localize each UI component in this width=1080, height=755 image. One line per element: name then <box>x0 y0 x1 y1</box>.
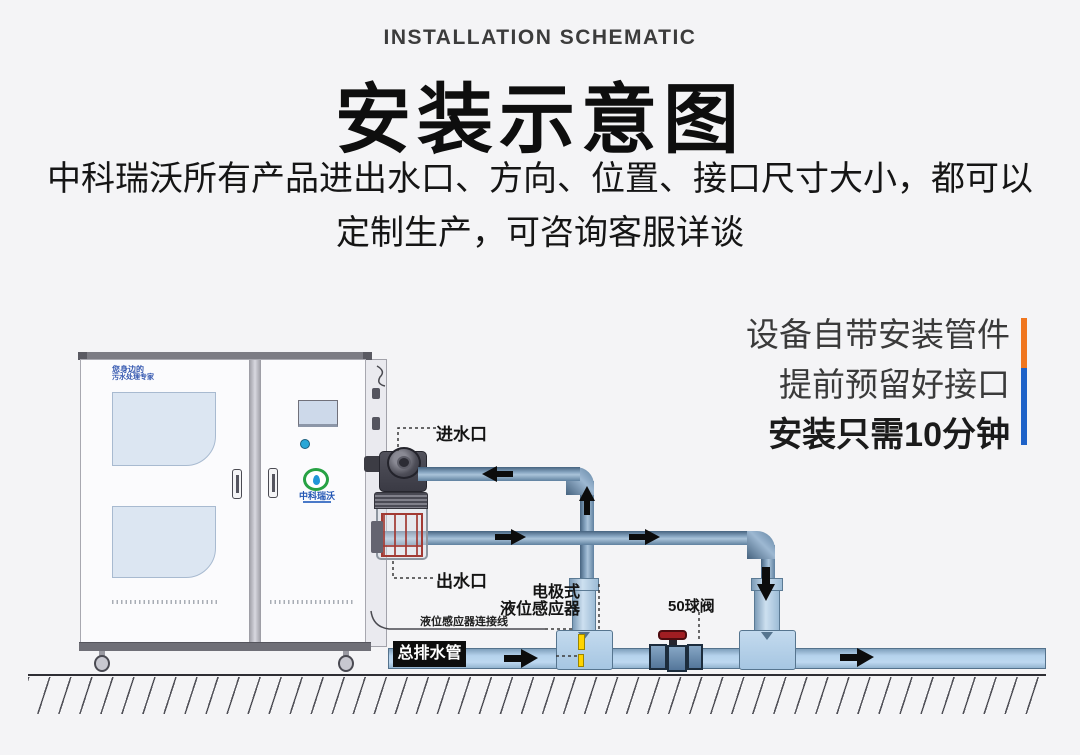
poster-page: INSTALLATION SCHEMATIC 安装示意图 中科瑞沃所有产品进出水… <box>0 0 1080 755</box>
ground-hatch <box>28 677 1046 714</box>
brand-logo-subline <box>303 501 331 503</box>
handle-slot <box>236 475 239 493</box>
inlet-pump-ring <box>387 447 421 479</box>
brand-line-2: 污水处理专家 <box>112 374 232 382</box>
caster-wheel <box>338 651 354 672</box>
vent-perforation <box>112 600 218 604</box>
power-button <box>300 439 310 449</box>
machine-brand-text: 您身边的 污水处理专家 <box>112 366 232 382</box>
filter-basket-rib <box>381 545 423 547</box>
machine-base <box>79 642 371 651</box>
brand-line-1: 您身边的 <box>112 366 232 374</box>
label-ball-valve: 50球阀 <box>668 595 715 616</box>
promo-accent-bar-orange <box>1021 318 1027 368</box>
handle-slot <box>272 474 275 492</box>
valve-handle <box>658 630 687 640</box>
level-sensor-electrode <box>578 654 584 667</box>
side-fitting <box>372 417 380 430</box>
subtitle: 中科瑞沃所有产品进出水口、方向、位置、接口尺寸大小，都可以 定制生产，可咨询客服… <box>0 152 1080 260</box>
promo-block: 设备自带安装管件 提前预留好接口 安装只需10分钟 <box>746 310 1010 460</box>
control-screen <box>298 400 338 427</box>
filter-basket <box>381 513 423 557</box>
pipe-elbow-right <box>747 531 775 559</box>
valve-flange-left <box>649 644 667 670</box>
water-drop-icon <box>313 475 320 485</box>
eyebrow-title: INSTALLATION SCHEMATIC <box>0 26 1080 50</box>
outlet-callout-line <box>393 561 433 578</box>
valve-flange-right <box>687 644 703 670</box>
level-sensor-electrode <box>578 634 585 650</box>
label-sensor-line-1: 电极式 <box>450 584 580 601</box>
machine-window-bottom <box>112 506 216 578</box>
outlet-pipe <box>383 531 747 545</box>
promo-line-2: 提前预留好接口 <box>746 360 1010 410</box>
ball-valve-body <box>667 645 687 672</box>
subtitle-line-2: 定制生产，可咨询客服详谈 <box>0 206 1080 260</box>
main-drain-pipe <box>388 648 1046 669</box>
promo-line-3: 安装只需10分钟 <box>746 410 1010 460</box>
inlet-pipe <box>418 467 580 481</box>
caster-wheel <box>94 651 110 672</box>
door-handle-left <box>232 469 242 499</box>
machine-window-top <box>112 392 216 466</box>
filter-threaded-neck <box>374 492 428 509</box>
label-main-drain: 总排水管 <box>393 641 466 667</box>
subtitle-line-1: 中科瑞沃所有产品进出水口、方向、位置、接口尺寸大小，都可以 <box>0 152 1080 206</box>
coupling-collar-right <box>751 578 783 591</box>
brand-logo-icon <box>303 468 329 491</box>
promo-line-1: 设备自带安装管件 <box>746 310 1010 360</box>
pump-ring-center <box>397 456 411 469</box>
label-sensor-cable: 液位感应器连接线 <box>420 613 508 629</box>
machine-door-divider <box>249 360 261 642</box>
vent-perforation <box>270 600 354 604</box>
door-handle-right <box>268 468 278 498</box>
promo-accent-bar-blue <box>1021 368 1027 445</box>
side-fitting <box>372 388 380 399</box>
label-inlet: 进水口 <box>436 420 487 445</box>
canister-bracket <box>371 521 383 553</box>
ground-line <box>28 674 1046 676</box>
